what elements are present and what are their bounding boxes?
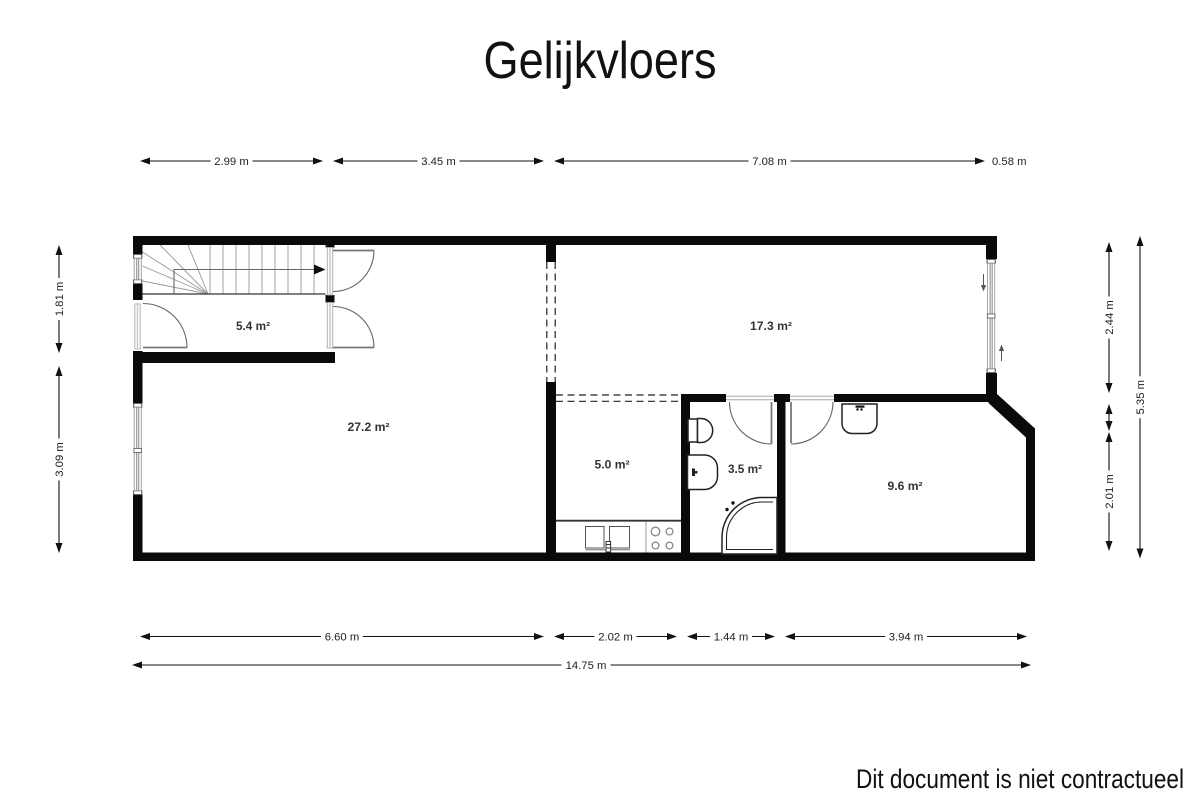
svg-text:Gelijkvloers: Gelijkvloers	[484, 32, 717, 90]
svg-text:3.45 m: 3.45 m	[421, 156, 456, 168]
svg-text:14.75 m: 14.75 m	[566, 660, 607, 672]
svg-text:2.44 m: 2.44 m	[1104, 300, 1116, 335]
svg-text:5.0 m²: 5.0 m²	[595, 459, 630, 471]
svg-text:1.81 m: 1.81 m	[54, 282, 66, 317]
svg-text:Dit document is niet contractu: Dit document is niet contractueel	[856, 764, 1184, 794]
svg-text:3.94 m: 3.94 m	[889, 632, 924, 644]
svg-text:5.4 m²: 5.4 m²	[236, 321, 270, 333]
svg-text:2.01 m: 2.01 m	[1104, 474, 1116, 509]
svg-text:6.60 m: 6.60 m	[325, 632, 360, 644]
svg-text:9.6 m²: 9.6 m²	[888, 481, 923, 493]
svg-text:3.5 m²: 3.5 m²	[728, 464, 762, 476]
svg-text:2.02 m: 2.02 m	[598, 632, 633, 644]
svg-text:7.08 m: 7.08 m	[752, 156, 787, 168]
svg-text:27.2 m²: 27.2 m²	[348, 422, 390, 434]
svg-text:0.58 m: 0.58 m	[992, 156, 1027, 168]
svg-text:2.99 m: 2.99 m	[214, 156, 249, 168]
svg-text:3.09 m: 3.09 m	[54, 442, 66, 477]
svg-text:17.3 m²: 17.3 m²	[750, 321, 792, 333]
svg-text:5.35 m: 5.35 m	[1135, 380, 1147, 415]
svg-text:1.44 m: 1.44 m	[714, 632, 749, 644]
